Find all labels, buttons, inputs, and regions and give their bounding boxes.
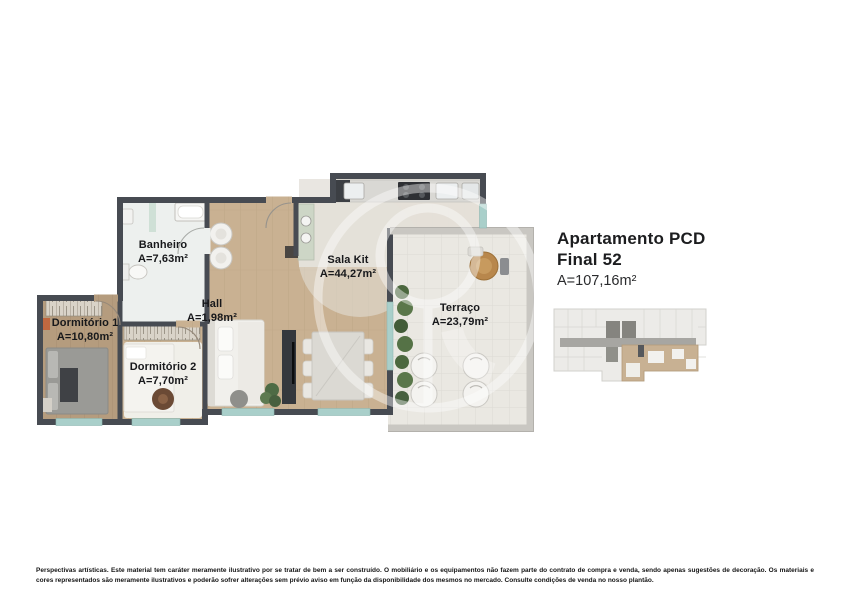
room-area: A=10,80m² bbox=[52, 330, 119, 344]
bathroom-sink-icon bbox=[122, 209, 133, 224]
floorplan-page: Banheiro A=7,63m² Hall A=1,98m² Sala Kit… bbox=[0, 0, 848, 600]
room-label-banheiro: Banheiro A=7,63m² bbox=[138, 238, 188, 266]
dorm2-closet-icon bbox=[124, 326, 200, 340]
room-name: Banheiro bbox=[138, 238, 188, 252]
legal-disclaimer: Perspectivas artísticas. Este material t… bbox=[36, 566, 814, 586]
bathtub-icon bbox=[175, 203, 206, 221]
key-plan-highlighted-unit bbox=[622, 345, 698, 381]
sala-pouf-icon bbox=[230, 390, 248, 408]
room-area: A=44,27m² bbox=[320, 267, 376, 281]
room-label-sala-kit: Sala Kit A=44,27m² bbox=[320, 253, 376, 281]
room-area: A=7,70m² bbox=[130, 374, 197, 388]
room-area: A=23,79m² bbox=[432, 315, 488, 329]
room-name: Hall bbox=[187, 297, 237, 311]
room-name: Dormitório 1 bbox=[52, 316, 119, 330]
key-plan-core-1 bbox=[606, 321, 620, 338]
room-area: A=7,63m² bbox=[138, 252, 188, 266]
window-sala-2 bbox=[318, 409, 370, 416]
unit-final: Final 52 bbox=[557, 250, 705, 271]
room-label-hall: Hall A=1,98m² bbox=[187, 297, 237, 325]
room-label-dormitorio-2: Dormitório 2 A=7,70m² bbox=[130, 360, 197, 388]
room-label-dormitorio-1: Dormitório 1 A=10,80m² bbox=[52, 316, 119, 344]
bathroom-tile-accent bbox=[149, 202, 156, 232]
tv-panel-icon bbox=[282, 330, 296, 404]
unit-title-block: Apartamento PCD Final 52 A=107,16m² bbox=[557, 229, 705, 289]
room-area: A=1,98m² bbox=[187, 311, 237, 325]
key-plan bbox=[554, 309, 706, 381]
window-dorm2 bbox=[132, 419, 180, 426]
window-dorm1 bbox=[56, 419, 102, 426]
room-name: Terraço bbox=[432, 301, 488, 315]
toilet-icon bbox=[122, 264, 147, 280]
floorplan-drawing bbox=[0, 0, 848, 600]
key-plan-core-3 bbox=[606, 347, 618, 362]
dorm1-bed-icon bbox=[42, 348, 108, 414]
room-name: Dormitório 2 bbox=[130, 360, 197, 374]
window-sala-1 bbox=[222, 409, 274, 416]
key-plan-core-2 bbox=[622, 321, 636, 338]
unit-area: A=107,16m² bbox=[557, 273, 705, 289]
terrace-glass-door bbox=[387, 302, 393, 370]
unit-title: Apartamento PCD bbox=[557, 229, 705, 250]
room-name: Sala Kit bbox=[320, 253, 376, 267]
room-label-terraco: Terraço A=23,79m² bbox=[432, 301, 488, 329]
sala-bed-icon bbox=[208, 320, 264, 408]
